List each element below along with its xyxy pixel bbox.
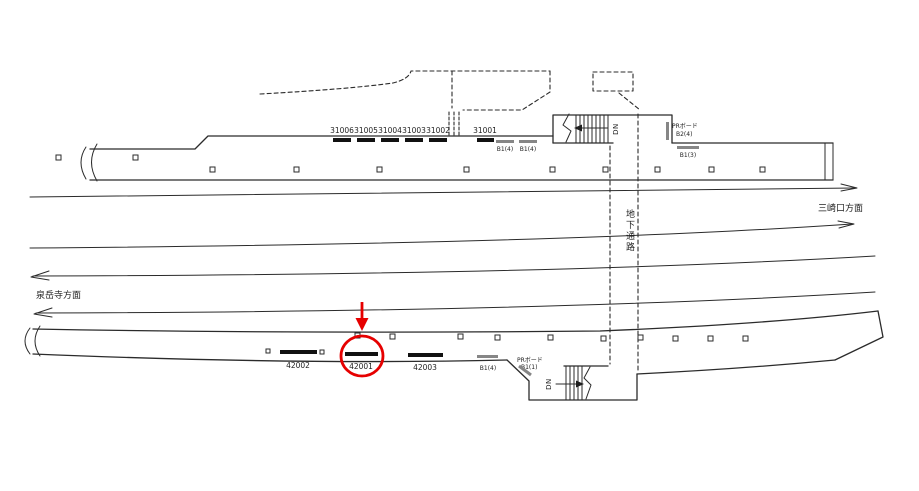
ad-board-42002	[280, 350, 317, 354]
ad-board-31001	[477, 138, 494, 142]
top-ad-boards: 31006 31005 31004 31003 31002 31001 B1(4…	[330, 126, 537, 153]
building-outline-side	[463, 71, 550, 110]
ad-board-31004	[381, 138, 399, 142]
stair-arrowhead	[576, 381, 584, 388]
small-board-label: B1(4)	[480, 365, 496, 372]
board-label: 31003	[402, 126, 426, 135]
tracks: 三崎口方面 泉岳寺方面	[30, 184, 875, 317]
track-2	[30, 224, 852, 248]
highlight-arrow-head	[356, 318, 369, 331]
small-board-b14-a	[496, 140, 514, 143]
b13-board-mark	[677, 146, 699, 149]
underground-passage: 地下通路	[610, 114, 638, 372]
passage-label: 地下通路	[624, 208, 635, 253]
building-annex-outline	[593, 72, 633, 91]
bottom-platform-pillars	[266, 333, 748, 354]
top-stairs: DN	[563, 114, 620, 143]
pr-board-mark	[666, 122, 669, 140]
bottom-platform: DN 42002 42001 42003 B1(4)	[25, 311, 883, 400]
building-outline-roof	[260, 71, 550, 94]
bottom-platform-break-mark	[25, 326, 40, 356]
board-label: 31001	[473, 126, 497, 135]
small-board-label: B1(4)	[520, 146, 536, 153]
top-b13-board: B1(3)	[677, 146, 699, 159]
bottom-platform-track-edge	[33, 311, 878, 332]
station-platform-diagram: DN 31006 31005 31004 31003 31002	[0, 0, 919, 491]
station-building-outline	[260, 71, 640, 135]
bottom-pr-board: PRボード B1(1)	[517, 356, 543, 375]
top-stairs-dn-label: DN	[612, 123, 620, 135]
board-label: 31004	[378, 126, 402, 135]
top-platform-pillars	[56, 155, 765, 172]
board-label: 31005	[354, 126, 378, 135]
bottom-stairs-dn-label: DN	[545, 378, 553, 390]
track-1-arrow	[841, 184, 857, 191]
stair-arrowhead	[574, 125, 582, 132]
track-1	[30, 188, 855, 197]
small-board-b14-b	[519, 140, 537, 143]
hidden-stair-marks	[449, 112, 459, 135]
b13-board-label: B1(3)	[680, 152, 696, 159]
top-platform-end-wall	[825, 143, 833, 180]
ad-board-31002	[429, 138, 447, 142]
board-label: 31006	[330, 126, 354, 135]
board-label: 42002	[286, 361, 310, 370]
building-connector	[619, 93, 640, 110]
bottom-stairs: DN	[545, 366, 591, 400]
top-platform-edge-left	[90, 136, 553, 149]
ad-board-31003	[405, 138, 423, 142]
top-pr-board: PRボード B2(4)	[666, 122, 698, 140]
board-label: 31002	[426, 126, 450, 135]
track-3	[33, 256, 875, 276]
pr-board-id: B2(4)	[676, 131, 692, 138]
stair-break-symbol	[563, 114, 571, 142]
ad-board-31006	[333, 138, 351, 142]
bottom-platform-back-edge-right	[637, 360, 835, 374]
diagram-canvas: DN 31006 31005 31004 31003 31002	[0, 0, 919, 491]
top-platform-break-mark	[81, 144, 97, 181]
board-label: 42003	[413, 363, 437, 372]
direction-label-misakiguchi: 三崎口方面	[818, 202, 863, 214]
ad-board-31005	[357, 138, 375, 142]
pr-board-name: PRボード	[517, 356, 543, 364]
track-4	[36, 292, 875, 313]
small-board-b14	[477, 355, 498, 358]
ad-board-42001	[345, 352, 378, 356]
bottom-platform-right-end	[835, 311, 883, 360]
pr-board-name: PRボード	[672, 122, 698, 130]
small-board-label: B1(4)	[497, 146, 513, 153]
direction-label-sengakuji: 泉岳寺方面	[36, 289, 81, 301]
top-platform: DN 31006 31005 31004 31003 31002	[56, 114, 833, 181]
board-label: 42001	[349, 362, 373, 371]
ad-board-42003	[408, 353, 443, 357]
stair-break-symbol	[584, 367, 591, 399]
